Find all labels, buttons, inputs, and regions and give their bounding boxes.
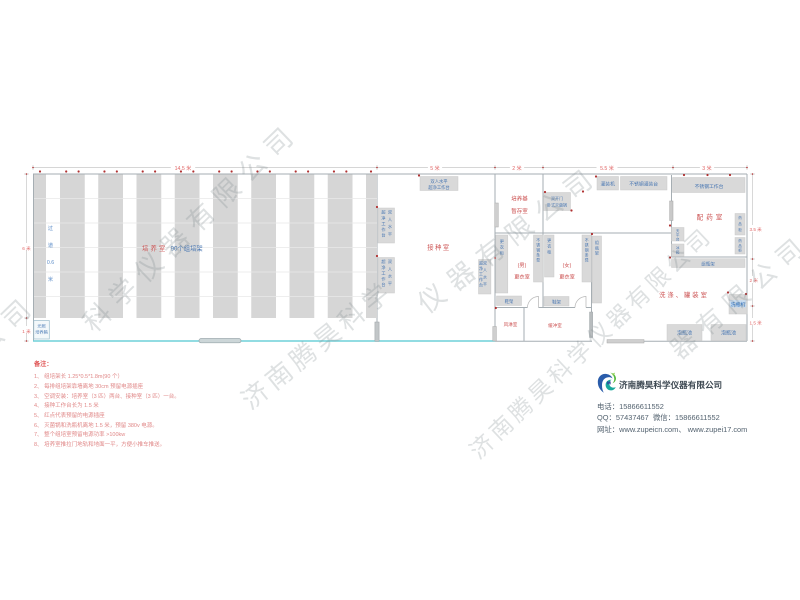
svg-text:2 米: 2 米 — [512, 164, 522, 172]
svg-text:培养箱: 培养箱 — [35, 329, 48, 336]
svg-text:缓冲室: 缓冲室 — [548, 322, 562, 329]
svg-text:5 米: 5 米 — [430, 164, 440, 172]
svg-text:3 米: 3 米 — [702, 164, 712, 172]
svg-text:不锈钢条凳: 不锈钢条凳 — [536, 238, 540, 262]
svg-text:药品柜: 药品柜 — [738, 238, 742, 253]
svg-text:配药室: 配药室 — [697, 213, 726, 222]
svg-text:不锈钢工作台: 不锈钢工作台 — [695, 183, 724, 190]
svg-text:更衣室: 更衣室 — [514, 273, 530, 281]
svg-text:5.5 米: 5.5 米 — [600, 164, 615, 172]
svg-text:3.5 米: 3.5 米 — [750, 226, 763, 233]
svg-text:(男): (男) — [518, 262, 527, 269]
svg-text:超净工作台: 超净工作台 — [428, 184, 449, 191]
svg-text:(女): (女) — [563, 261, 572, 269]
svg-text:接种室: 接种室 — [427, 243, 450, 252]
svg-text:过道0.6米: 过道0.6米 — [47, 224, 54, 283]
svg-text:14.5 米: 14.5 米 — [175, 164, 193, 172]
svg-text:风淋室: 风淋室 — [504, 321, 518, 328]
svg-text:更衣室: 更衣室 — [559, 273, 575, 281]
svg-text:光照: 光照 — [37, 323, 45, 330]
svg-text:药品柜: 药品柜 — [738, 215, 742, 232]
svg-text:1.5 米: 1.5 米 — [750, 320, 763, 327]
svg-text:鞋架: 鞋架 — [505, 298, 514, 305]
svg-text:6 米: 6 米 — [22, 245, 31, 252]
svg-text:不锈钢灌装台: 不锈钢灌装台 — [629, 181, 658, 188]
svg-text:组瓶架: 组瓶架 — [701, 261, 715, 268]
svg-text:不锈钢条凳: 不锈钢条凳 — [585, 238, 589, 262]
svg-text:组瓶架: 组瓶架 — [595, 239, 599, 256]
svg-text:双人水平: 双人水平 — [430, 178, 448, 185]
svg-text:鞋架: 鞋架 — [552, 299, 561, 306]
